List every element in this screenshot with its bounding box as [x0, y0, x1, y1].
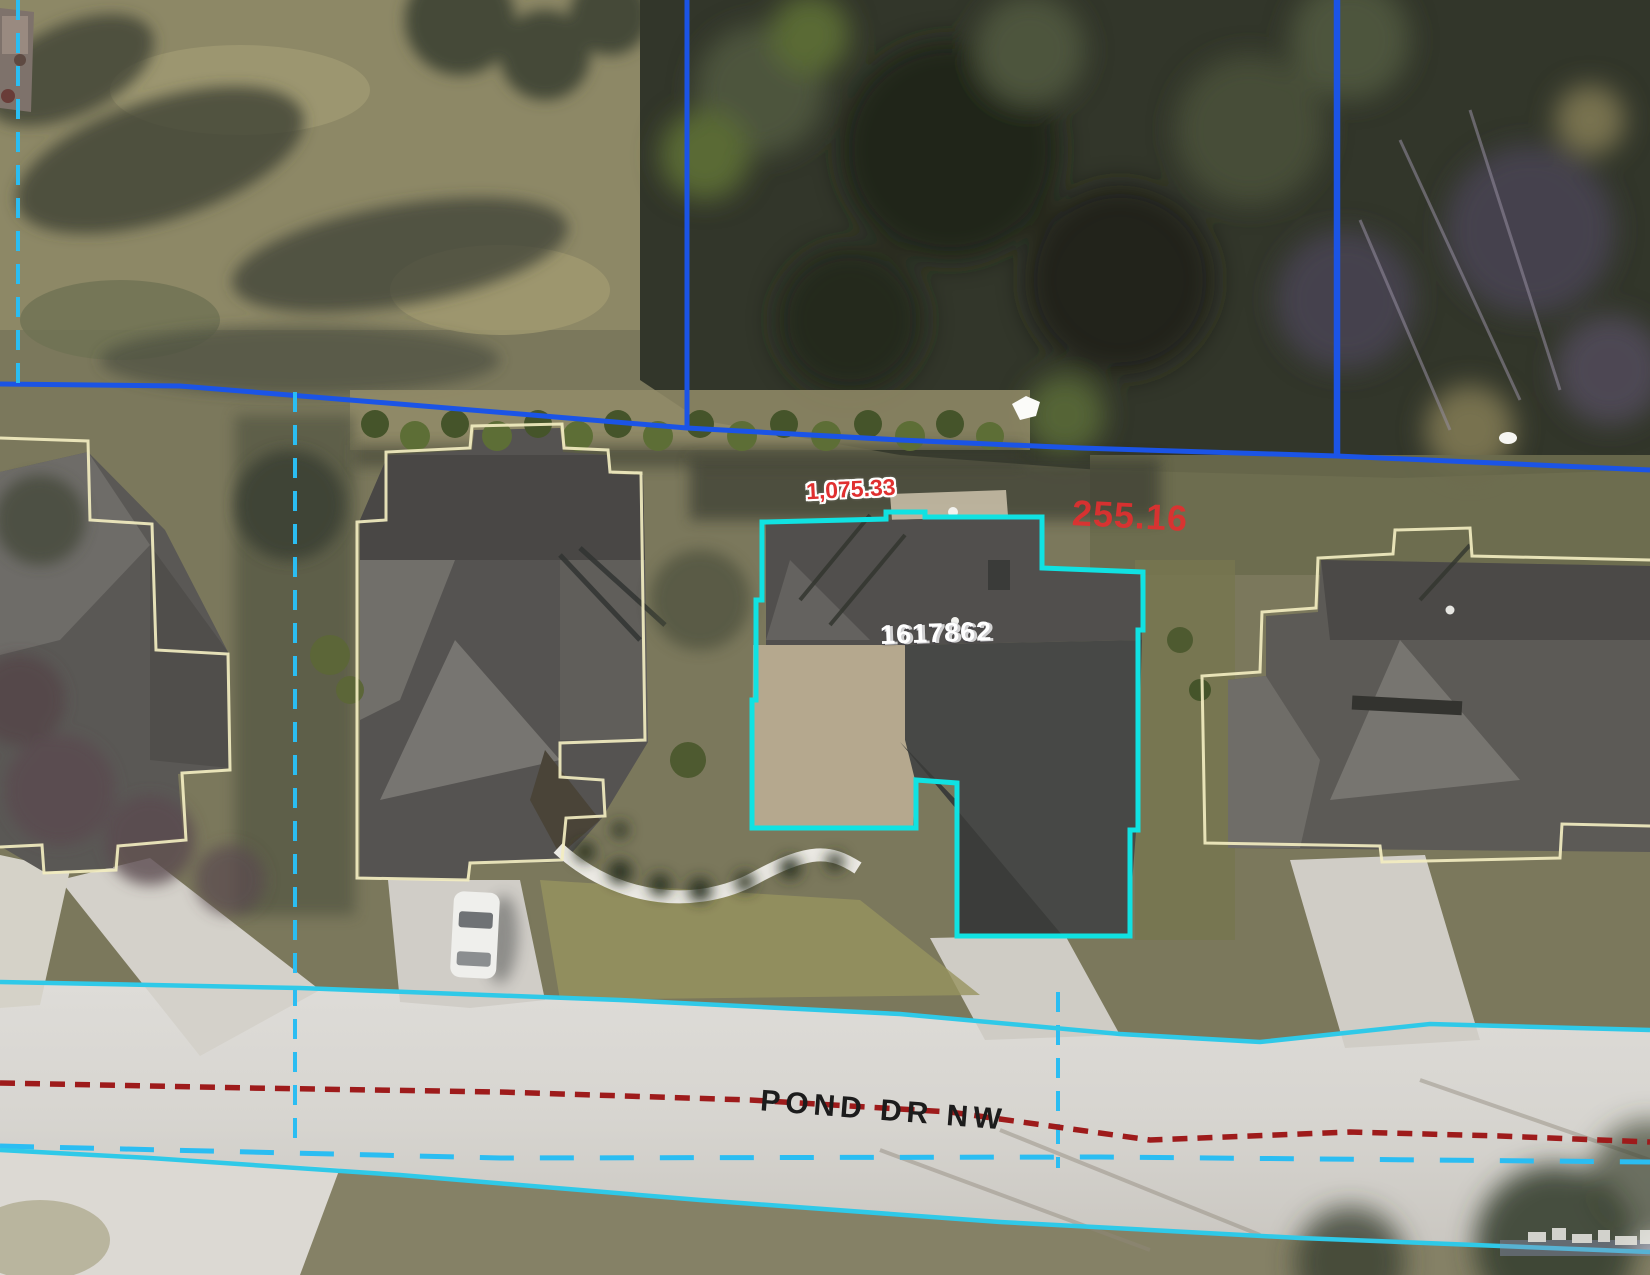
car — [450, 891, 521, 984]
map-canvas[interactable]: 1,075.33 255.16 1617862 POND DR NW — [0, 0, 1650, 1275]
aerial-scene — [0, 0, 1650, 1275]
lot-dimension-label-right: 255.16 — [1071, 495, 1189, 537]
parcel-number-label: 1617862 — [880, 618, 993, 649]
lot-dimension-label-top: 1,075.33 — [805, 476, 896, 504]
structure-top-left — [0, 8, 34, 112]
